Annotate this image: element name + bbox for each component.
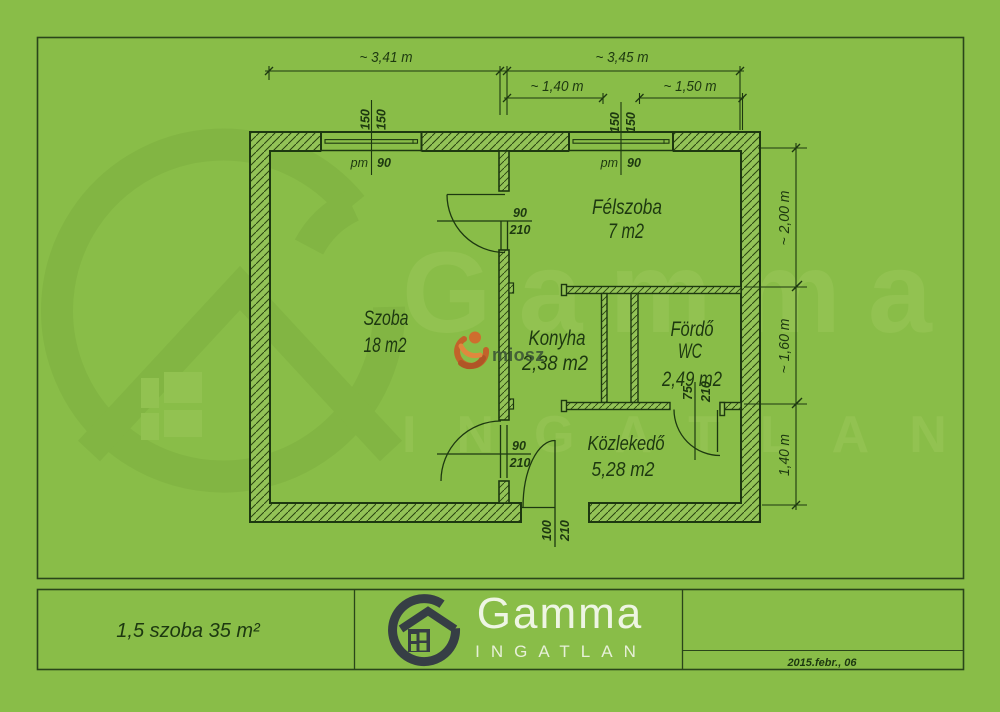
svg-text:100: 100 [540,520,554,541]
svg-text:~ 3,45 m: ~ 3,45 m [596,50,649,66]
svg-text:1,40 m: 1,40 m [777,434,793,476]
svg-text:Gamma: Gamma [477,589,643,638]
svg-text:150: 150 [608,112,622,133]
svg-text:Félszoba: Félszoba [592,196,662,219]
svg-text:210: 210 [558,520,572,542]
svg-text:~ 3,41 m: ~ 3,41 m [360,50,413,66]
svg-text:7 m2: 7 m2 [608,220,644,243]
svg-text:pm: pm [600,156,618,170]
svg-text:Fördő: Fördő [671,318,714,341]
svg-text:1,5 szoba 35 m²: 1,5 szoba 35 m² [116,620,261,642]
svg-text:2,49 m2: 2,49 m2 [661,368,722,391]
svg-text:~ 1,40 m: ~ 1,40 m [531,79,584,95]
svg-text:90: 90 [627,156,641,170]
svg-text:90: 90 [512,439,526,453]
svg-text:18 m2: 18 m2 [364,334,407,357]
svg-text:150: 150 [359,109,373,130]
svg-text:90: 90 [513,206,527,220]
svg-text:WC: WC [678,340,703,363]
svg-text:pm: pm [350,156,368,170]
svg-text:210: 210 [509,456,531,470]
svg-text:INGATLAN: INGATLAN [475,642,647,661]
svg-text:Szoba: Szoba [364,307,409,330]
svg-text:INGATLAN: INGATLAN [402,406,987,464]
svg-text:Közlekedő: Közlekedő [588,433,666,455]
svg-text:~ 2,00 m: ~ 2,00 m [777,191,793,246]
svg-text:~ 1,60 m: ~ 1,60 m [777,319,793,374]
svg-text:~ 1,50 m: ~ 1,50 m [664,79,717,95]
svg-text:150: 150 [375,109,389,130]
svg-text:miosz: miosz [492,345,545,365]
svg-text:5,28 m2: 5,28 m2 [592,459,655,481]
svg-text:90: 90 [377,156,391,170]
svg-text:210: 210 [509,223,531,237]
svg-text:150: 150 [624,112,638,133]
svg-text:2015.febr., 06: 2015.febr., 06 [786,657,857,669]
